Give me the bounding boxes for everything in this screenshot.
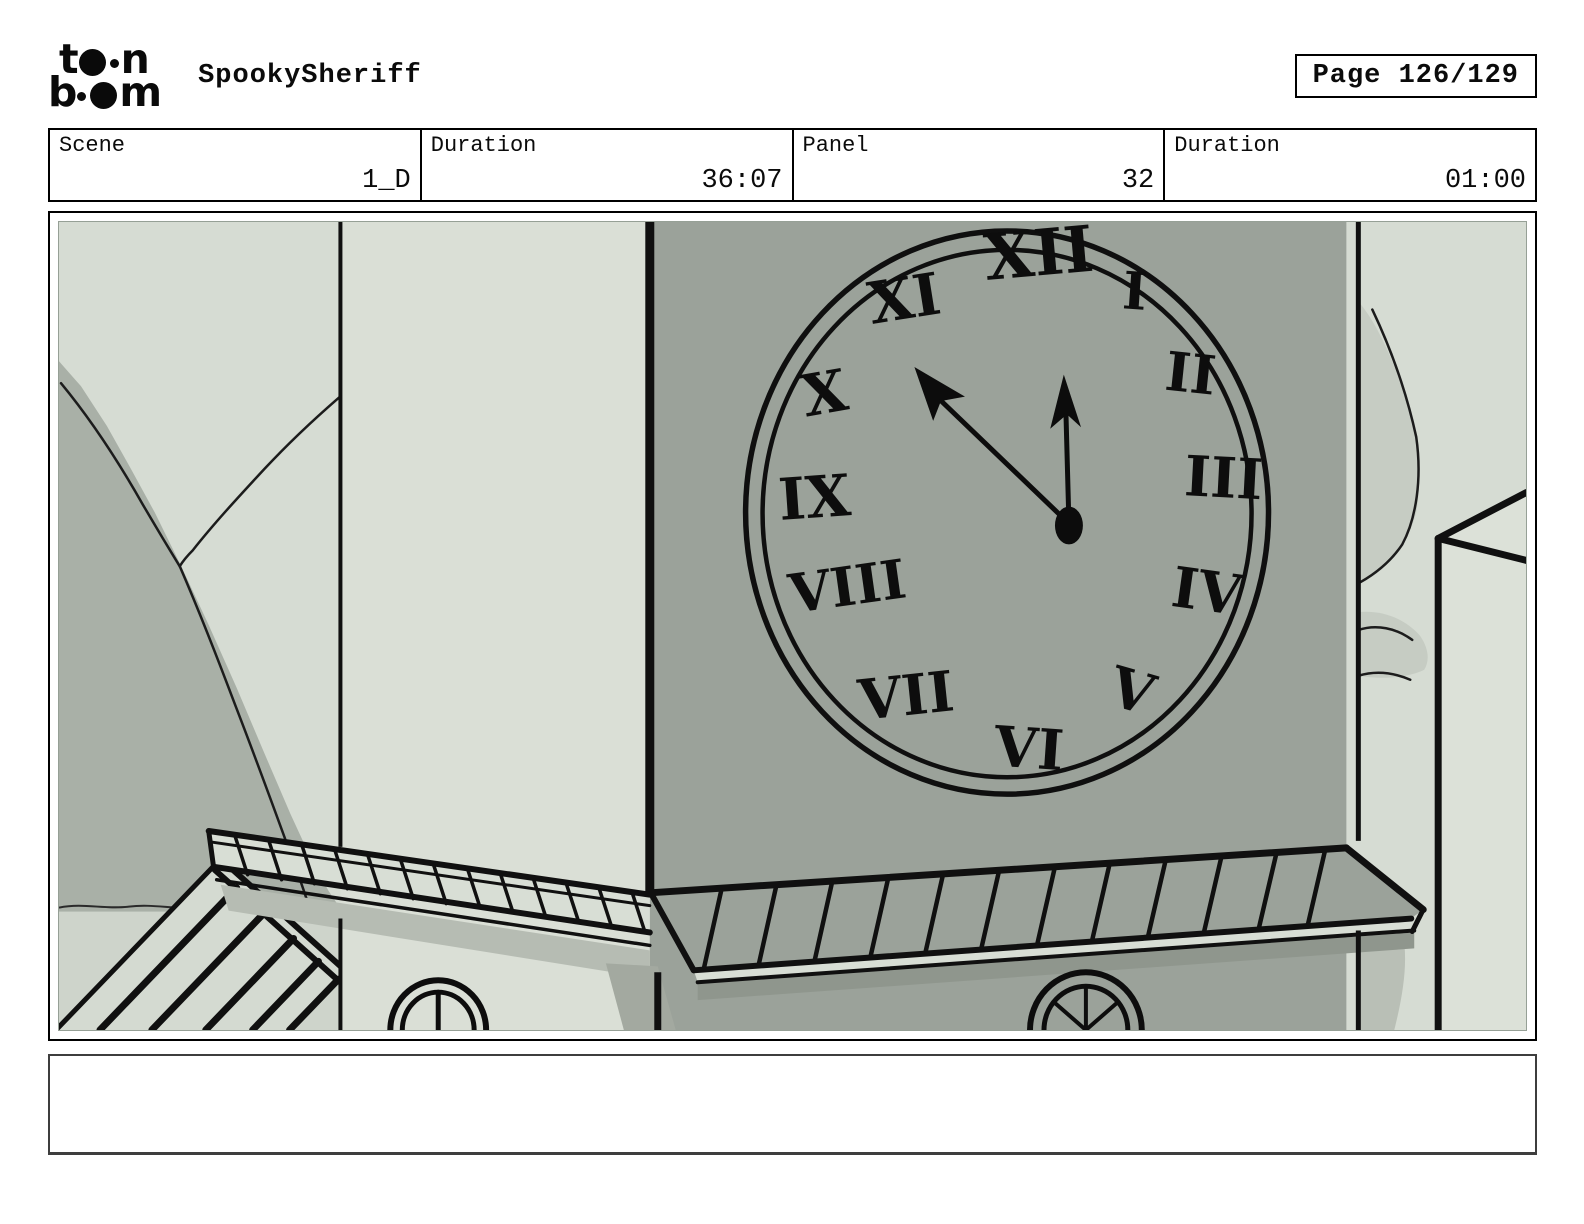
numeral-4: IV (1168, 555, 1248, 629)
panel-info-table: Scene 1_D Duration 36:07 Panel 32 Durati… (48, 128, 1537, 202)
logo-o-dot-icon (77, 92, 86, 101)
storyboard-page: t n b m SpookySheriff Page 126/129 Scene… (48, 0, 1537, 1155)
numeral-9: IX (776, 461, 853, 534)
page-header: t n b m SpookySheriff Page 126/129 (48, 40, 1537, 112)
numeral-1: I (1121, 260, 1149, 322)
numeral-6: VI (991, 715, 1066, 785)
caption-box (48, 1054, 1537, 1155)
scene-duration-value: 36:07 (431, 166, 783, 196)
clock-center-pin (1055, 507, 1083, 545)
scene-label: Scene (59, 133, 411, 158)
panel-cell: Panel 32 (793, 129, 1165, 201)
panel-duration-value: 01:00 (1174, 166, 1526, 196)
project-title: SpookySheriff (198, 61, 422, 91)
logo-o-dot-icon (110, 59, 119, 68)
panel-value: 32 (803, 166, 1155, 196)
numeral-12: XII (981, 222, 1096, 296)
page-number-box: Page 126/129 (1295, 54, 1537, 98)
logo-letter-m: m (119, 72, 160, 113)
logo-o-disc-icon (79, 49, 106, 76)
right-building-face (1438, 493, 1526, 1030)
storyboard-panel-frame: XII I II III IV V VI VII VIII IX X XI (48, 211, 1537, 1041)
scene-value: 1_D (59, 166, 411, 196)
logo-o-disc-icon (90, 82, 117, 109)
numeral-2: II (1162, 339, 1219, 408)
scene-cell: Scene 1_D (49, 129, 421, 201)
panel-duration-label: Duration (1174, 133, 1526, 158)
panel-label: Panel (803, 133, 1155, 158)
numeral-7: VII (854, 659, 957, 734)
clock-tower-drawing: XII I II III IV V VI VII VIII IX X XI (59, 222, 1526, 1030)
panel-duration-cell: Duration 01:00 (1164, 129, 1536, 201)
toonboom-logo: t n b m (48, 43, 160, 109)
logo-row-boom: b m (48, 76, 160, 109)
numeral-3: III (1183, 444, 1265, 513)
numeral-11: XI (863, 259, 945, 337)
scene-duration-cell: Duration 36:07 (421, 129, 793, 201)
scene-duration-label: Duration (431, 133, 783, 158)
storyboard-drawing: XII I II III IV V VI VII VIII IX X XI (58, 221, 1527, 1031)
logo-letter-b: b (48, 72, 75, 113)
